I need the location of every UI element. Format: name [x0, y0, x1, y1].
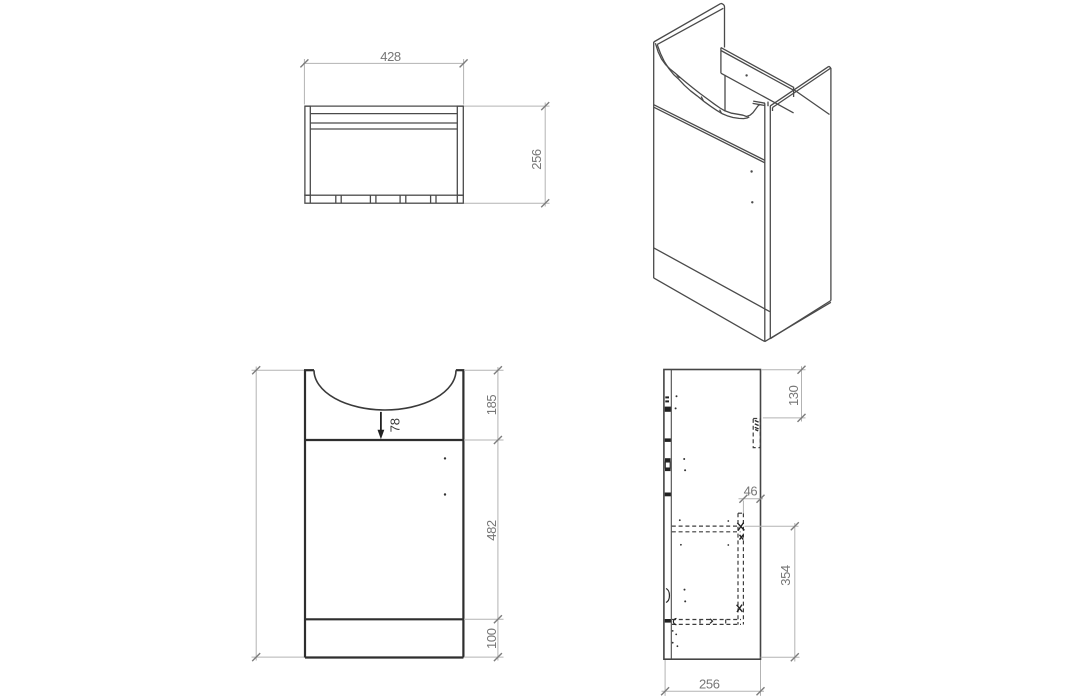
svg-text:78: 78 — [388, 418, 403, 432]
svg-text:482: 482 — [484, 520, 499, 541]
svg-text:185: 185 — [484, 395, 499, 416]
svg-text:256: 256 — [529, 149, 544, 170]
svg-text:428: 428 — [380, 49, 401, 64]
svg-text:256: 256 — [699, 676, 720, 691]
svg-text:100: 100 — [484, 628, 499, 649]
svg-text:354: 354 — [778, 565, 793, 586]
svg-text:130: 130 — [786, 385, 801, 406]
